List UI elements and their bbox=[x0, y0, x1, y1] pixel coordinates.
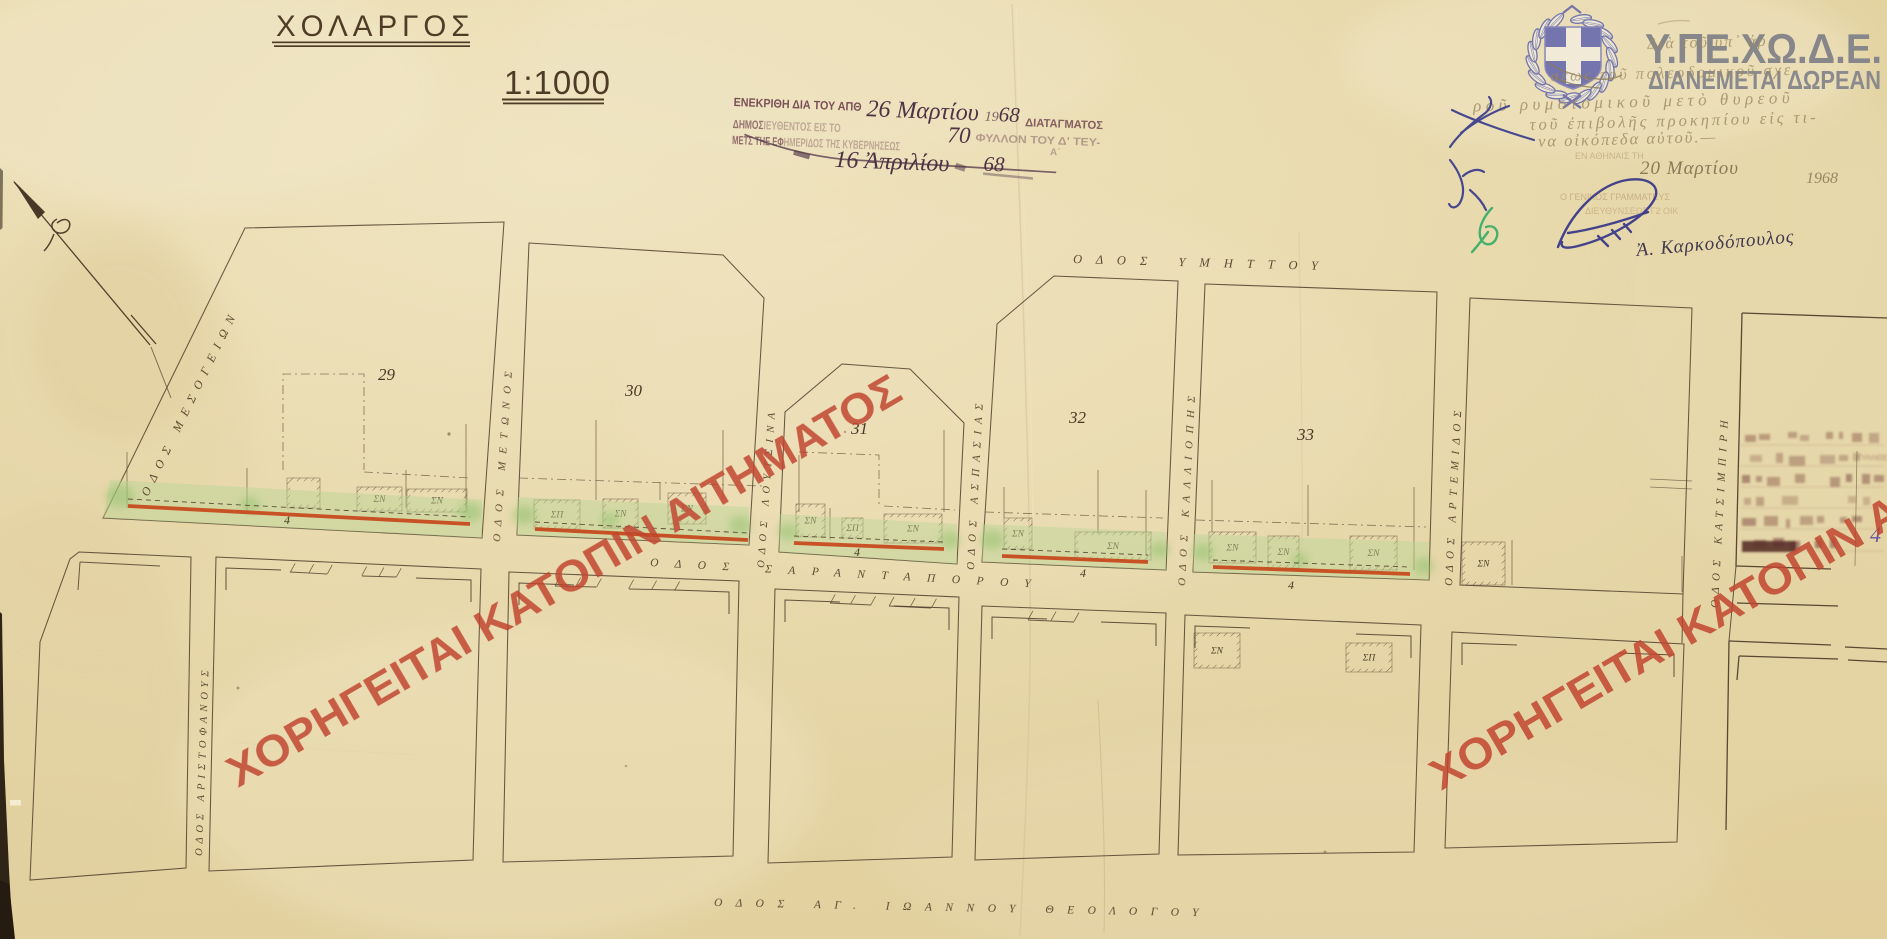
svg-text:70: 70 bbox=[947, 122, 971, 148]
svg-text:4: 4 bbox=[1080, 566, 1086, 580]
svg-text:ΕΝ ΑΘΗΝΑΙΣ ΤΗ: ΕΝ ΑΘΗΝΑΙΣ ΤΗ bbox=[1575, 151, 1644, 161]
svg-text:29: 29 bbox=[378, 365, 396, 384]
svg-text:33: 33 bbox=[1296, 425, 1314, 444]
svg-text:Α΄: Α΄ bbox=[1050, 147, 1061, 158]
svg-text:ΔΙΕΥΘΥΝΣΕΩΣ Γ2 ΟΙΚ: ΔΙΕΥΘΥΝΣΕΩΣ Γ2 ΟΙΚ bbox=[1585, 206, 1679, 216]
svg-text:4: 4 bbox=[1288, 578, 1294, 592]
svg-text:4: 4 bbox=[854, 545, 860, 559]
svg-text:1968: 1968 bbox=[1806, 170, 1838, 187]
svg-text:32: 32 bbox=[1068, 408, 1087, 427]
svg-text:30: 30 bbox=[624, 381, 643, 400]
svg-text:ΓΥΛΛΙΟΣ: ΓΥΛΛΙΟΣ bbox=[1858, 455, 1887, 462]
svg-text:ΧΟΛΑΡΓΟΣ: ΧΟΛΑΡΓΟΣ bbox=[276, 10, 475, 43]
svg-text:4: 4 bbox=[284, 513, 290, 527]
svg-text:ΣΝ: ΣΝ bbox=[1477, 560, 1491, 570]
svg-text:20 Μαρτίου: 20 Μαρτίου bbox=[1640, 158, 1739, 179]
svg-text:Διὰ τοῦ ὑπ᾽ ἀρ.: Διὰ τοῦ ὑπ᾽ ἀρ. bbox=[1646, 32, 1773, 52]
svg-text:1:1000: 1:1000 bbox=[504, 64, 611, 101]
svg-text:ΣΝ: ΣΝ bbox=[1210, 647, 1224, 657]
svg-text:ΣΠ: ΣΠ bbox=[1362, 654, 1377, 664]
